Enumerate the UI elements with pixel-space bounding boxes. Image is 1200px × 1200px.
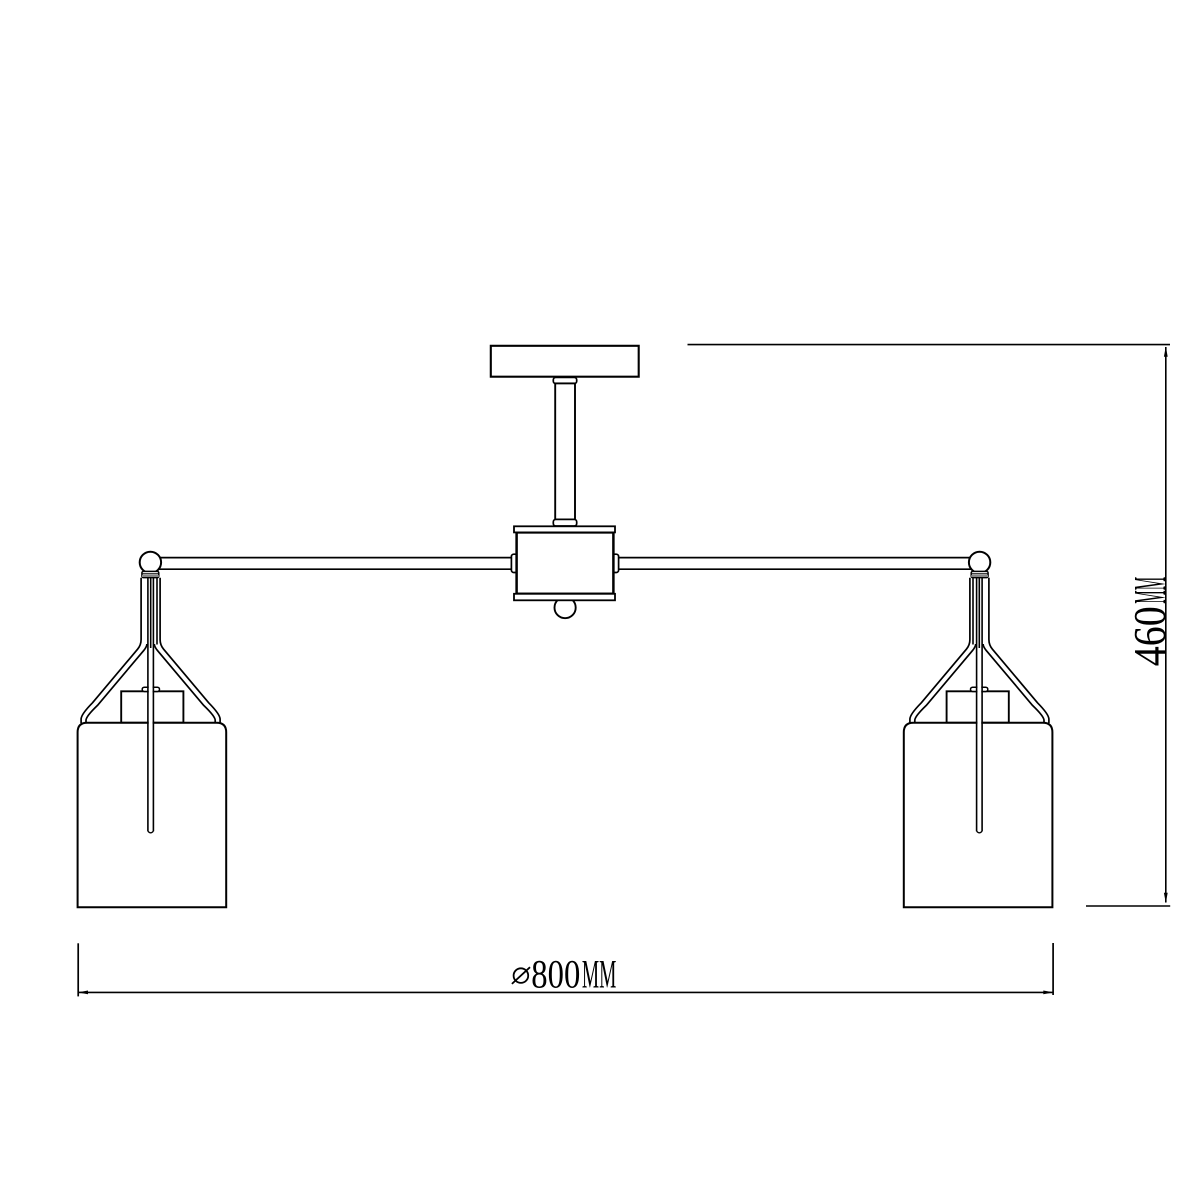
svg-text:MM: MM	[582, 952, 617, 997]
svg-text:800: 800	[531, 952, 580, 997]
svg-text:460: 460	[1124, 606, 1175, 666]
svg-text:MM: MM	[1124, 577, 1175, 604]
